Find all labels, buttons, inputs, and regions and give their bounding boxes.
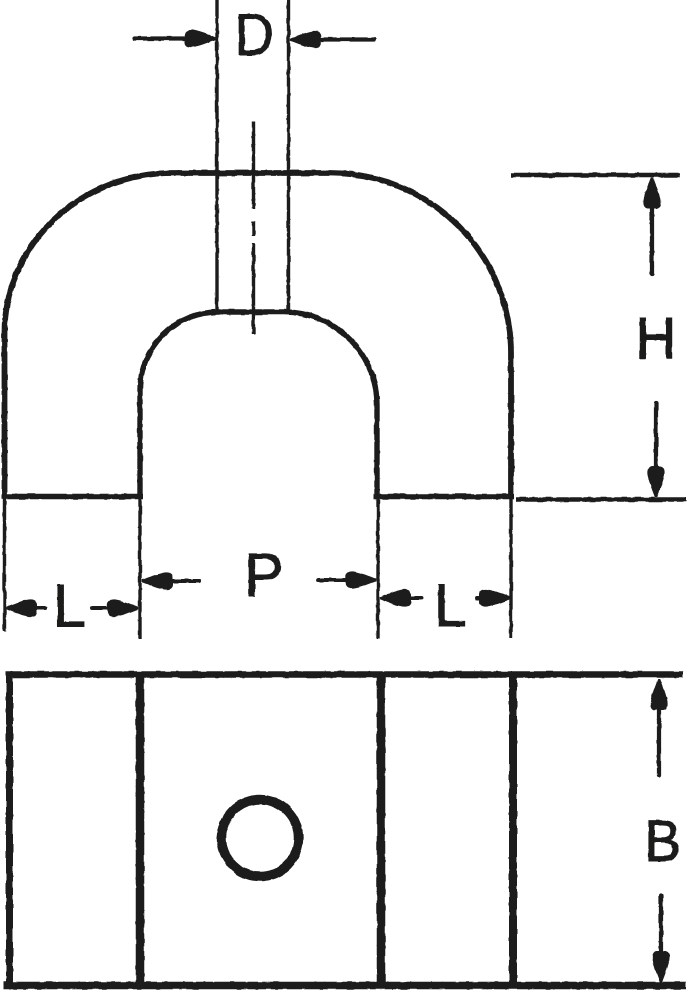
svg-text:P: P: [244, 541, 283, 610]
svg-text:H: H: [636, 306, 677, 371]
svg-text:B: B: [644, 809, 681, 874]
svg-text:L: L: [53, 572, 86, 640]
svg-text:L: L: [434, 571, 467, 639]
svg-text:D: D: [235, 2, 274, 69]
